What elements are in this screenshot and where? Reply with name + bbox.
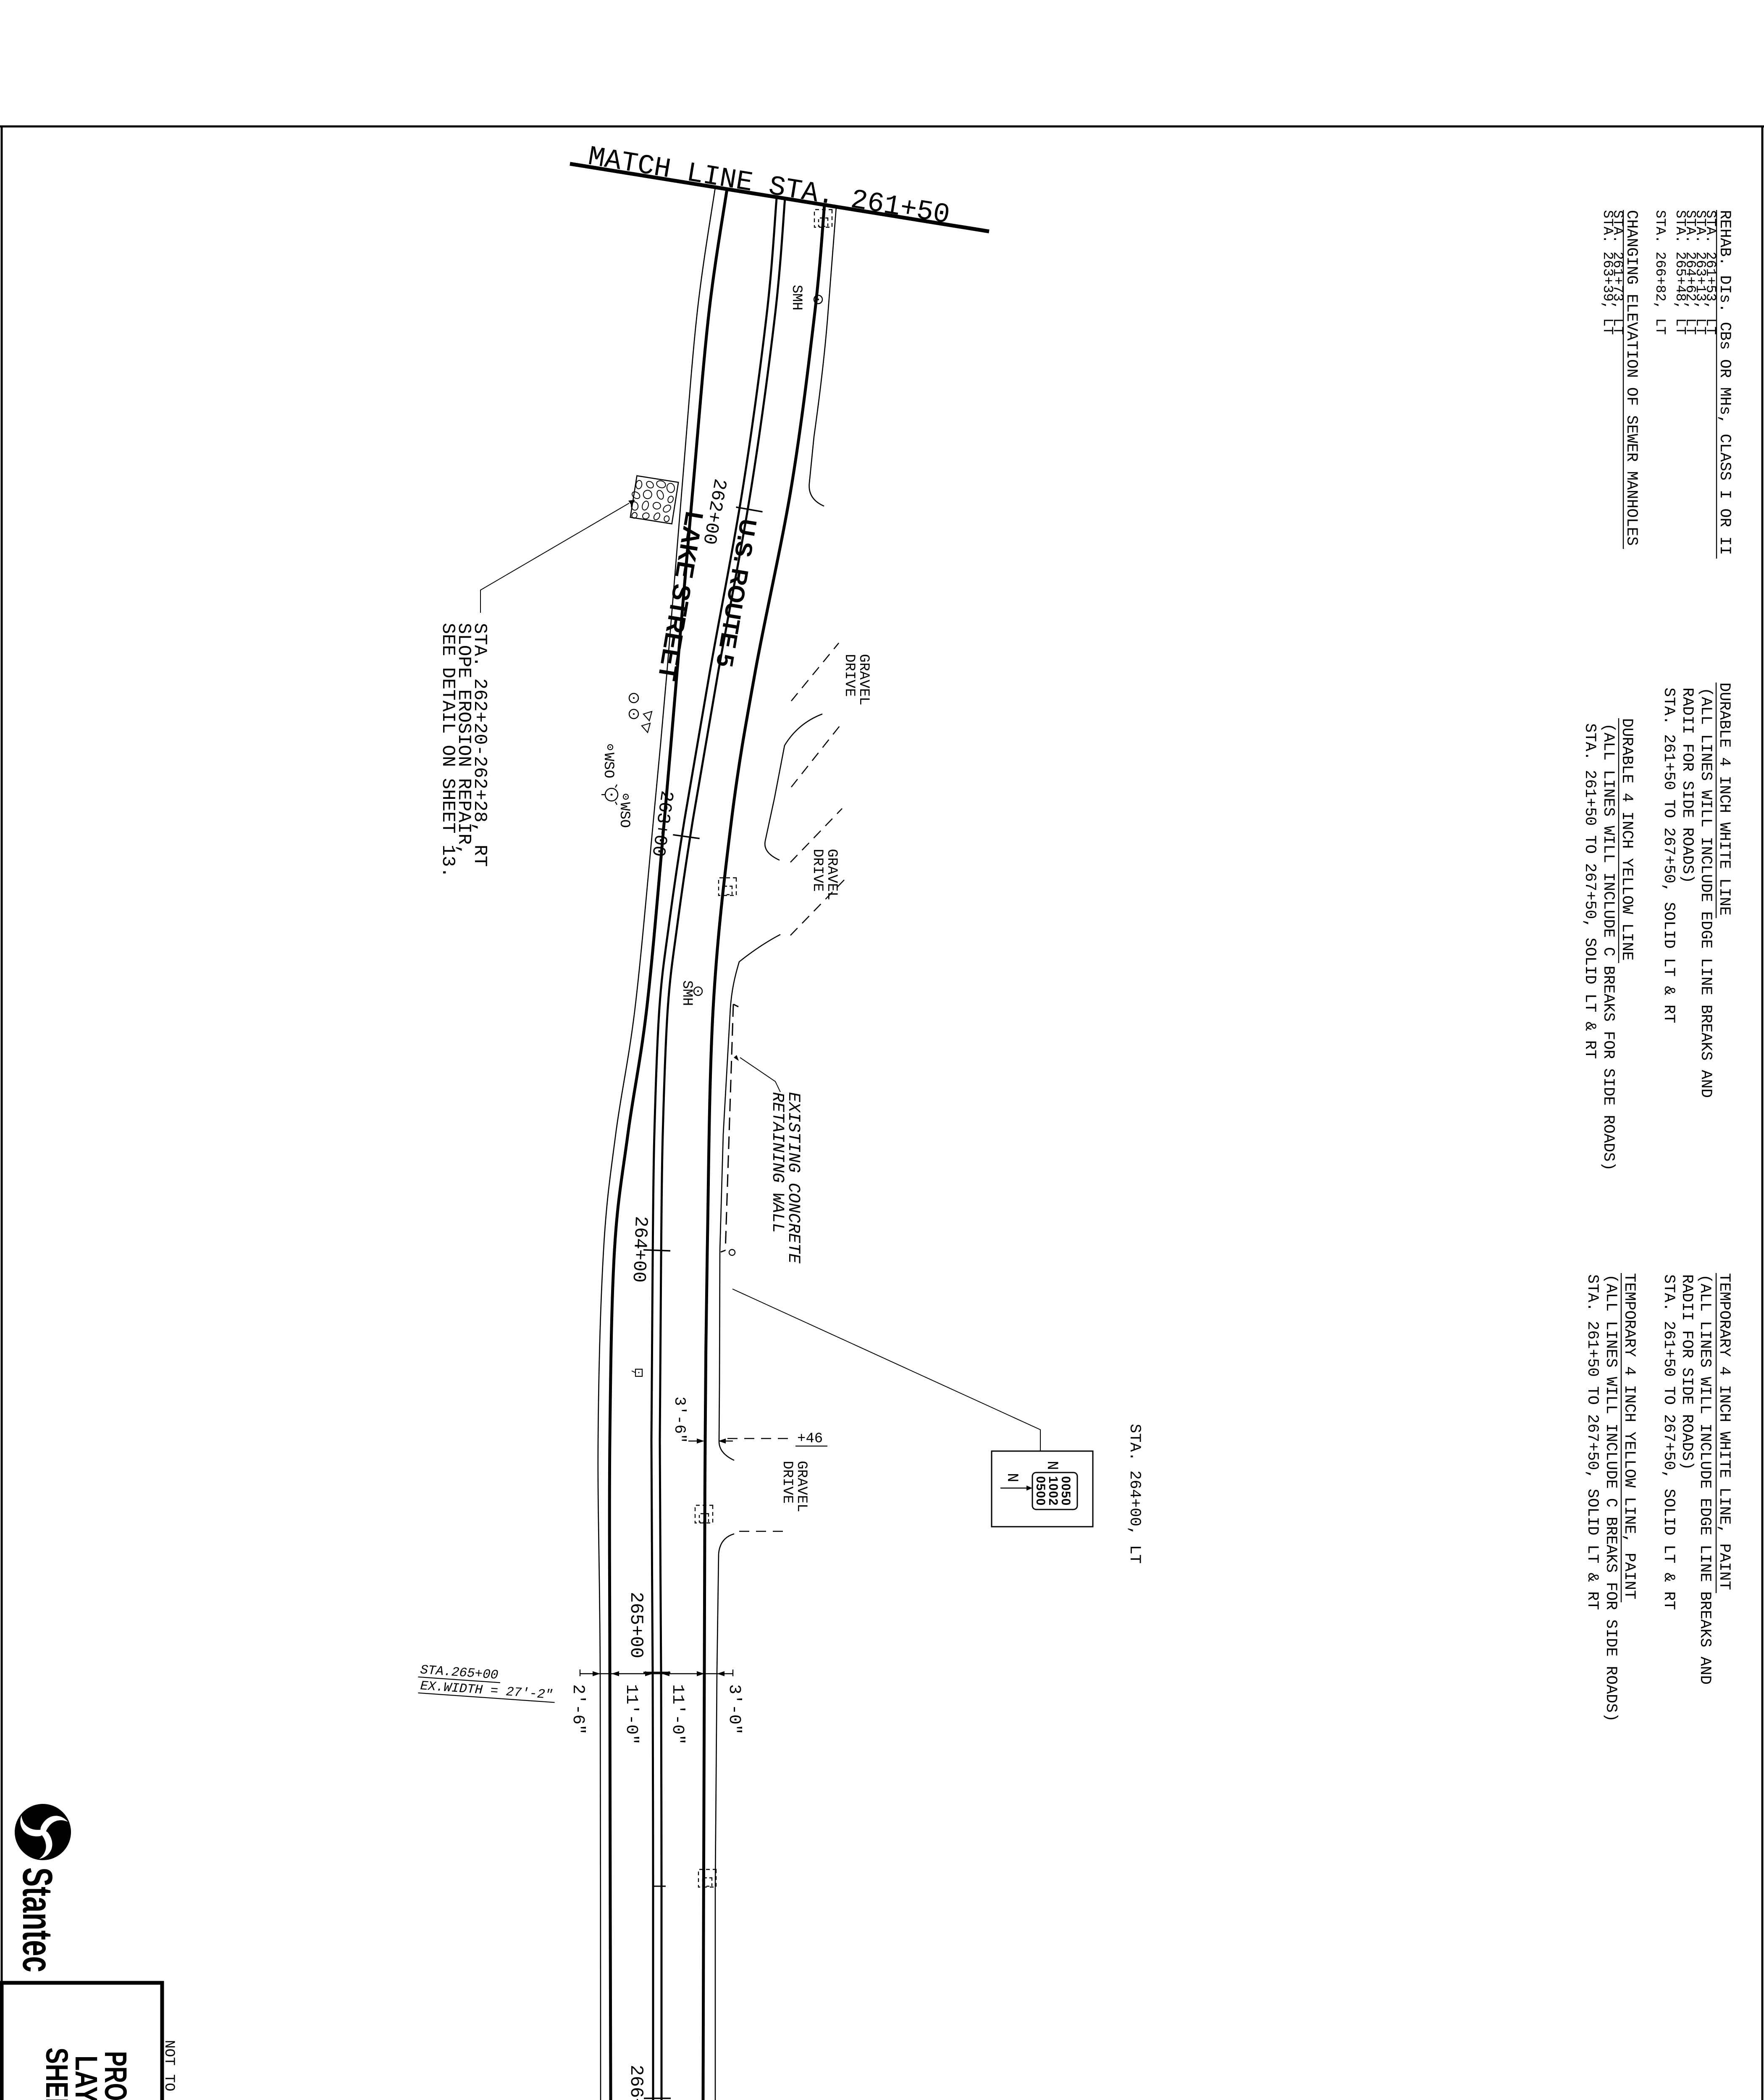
- svg-text:RETAINING WALL: RETAINING WALL: [768, 1092, 787, 1233]
- svg-text:STA. 261+50 TO 267+50, SOLID L: STA. 261+50 TO 267+50, SOLID LT & RT: [1660, 688, 1677, 1023]
- svg-text:+46: +46: [797, 1431, 823, 1447]
- svg-text:NOT TO SCALE: NOT TO SCALE: [161, 2040, 177, 2100]
- svg-text:EX.WIDTH = 27'-2": EX.WIDTH = 27'-2": [420, 1679, 553, 1703]
- svg-text:1002: 1002: [1046, 1476, 1060, 1506]
- svg-text:WSO: WSO: [600, 753, 616, 778]
- svg-text:STA. 266+82, LT: STA. 266+82, LT: [1652, 210, 1668, 335]
- svg-text:GRAVEL: GRAVEL: [824, 849, 840, 900]
- svg-text:STA. 261+50 TO 267+50, SOLID L: STA. 261+50 TO 267+50, SOLID LT & RT: [1583, 1274, 1601, 1610]
- svg-text:RADII FOR SIDE ROADS): RADII FOR SIDE ROADS): [1678, 688, 1696, 883]
- svg-text:2'-6": 2'-6": [568, 1684, 587, 1735]
- svg-text:DRIVE: DRIVE: [841, 654, 857, 697]
- svg-text:N: N: [1043, 1461, 1060, 1470]
- svg-text:264+00: 264+00: [627, 1216, 651, 1283]
- svg-text:Stantec: Stantec: [14, 1867, 61, 1972]
- svg-text:STA. 261+50 TO 267+50, SOLID L: STA. 261+50 TO 267+50, SOLID LT & RT: [1660, 1274, 1677, 1610]
- svg-text:266+00: 266+00: [625, 2065, 646, 2100]
- svg-text:(ALL LINES WILL INCLUDE C BREA: (ALL LINES WILL INCLUDE C BREAKS FOR SID…: [1602, 1274, 1620, 1722]
- svg-text:STA. 265+48, LT: STA. 265+48, LT: [1672, 210, 1688, 335]
- svg-text:3'-6": 3'-6": [670, 1396, 688, 1443]
- svg-text:LAKE STREET: LAKE STREET: [653, 509, 709, 682]
- svg-text:DURABLE 4 INCH WHITE LINE: DURABLE 4 INCH WHITE LINE: [1715, 682, 1733, 916]
- svg-text:DURABLE 4 INCH YELLOW LINE: DURABLE 4 INCH YELLOW LINE: [1618, 718, 1635, 961]
- svg-text:N: N: [1003, 1473, 1021, 1482]
- svg-text:TEMPORARY 4 INCH YELLOW LINE,: TEMPORARY 4 INCH YELLOW LINE, PAINT: [1620, 1273, 1638, 1599]
- svg-text:DRIVE: DRIVE: [809, 849, 825, 892]
- svg-text:STA. 264+00, LT: STA. 264+00, LT: [1126, 1424, 1143, 1564]
- svg-text:DRIVE: DRIVE: [779, 1461, 795, 1504]
- svg-text:SEE DETAIL ON SHEET 13.: SEE DETAIL ON SHEET 13.: [437, 623, 458, 878]
- svg-text:0500: 0500: [1034, 1476, 1047, 1506]
- svg-text:RADII FOR SIDE ROADS): RADII FOR SIDE ROADS): [1678, 1274, 1696, 1470]
- svg-text:SHEET #2: SHEET #2: [39, 2047, 74, 2100]
- svg-text:(ALL LINES WILL INCLUDE EDGE L: (ALL LINES WILL INCLUDE EDGE LINE BREAKS…: [1696, 1274, 1714, 1685]
- svg-text:STA. 263+39, LT: STA. 263+39, LT: [1600, 210, 1615, 335]
- svg-text:GRAVEL: GRAVEL: [793, 1461, 809, 1512]
- svg-text:SMH: SMH: [788, 285, 804, 310]
- svg-text:(ALL LINES WILL INCLUDE EDGE L: (ALL LINES WILL INCLUDE EDGE LINE BREAKS…: [1697, 688, 1714, 1098]
- svg-text:(ALL LINES WILL INCLUDE C BREA: (ALL LINES WILL INCLUDE C BREAKS FOR SID…: [1599, 723, 1617, 1171]
- svg-text:265+00: 265+00: [625, 1592, 646, 1658]
- svg-text:11'-0": 11'-0": [622, 1684, 640, 1745]
- svg-text:WSO: WSO: [616, 802, 632, 828]
- svg-text:MATCH LINE STA. 261+50: MATCH LINE STA. 261+50: [586, 141, 952, 231]
- svg-text:11'-0": 11'-0": [668, 1684, 687, 1745]
- svg-text:0050: 0050: [1059, 1476, 1073, 1506]
- svg-text:263+00: 263+00: [647, 789, 677, 858]
- svg-text:STA. 261+50 TO 267+50, SOLID L: STA. 261+50 TO 267+50, SOLID LT & RT: [1581, 723, 1599, 1059]
- svg-text:GRAVEL: GRAVEL: [856, 654, 871, 705]
- svg-text:3'-0": 3'-0": [724, 1684, 743, 1735]
- svg-text:SMH: SMH: [679, 980, 695, 1006]
- svg-text:TEMPORARY 4 INCH WHITE LINE, P: TEMPORARY 4 INCH WHITE LINE, PAINT: [1715, 1273, 1733, 1590]
